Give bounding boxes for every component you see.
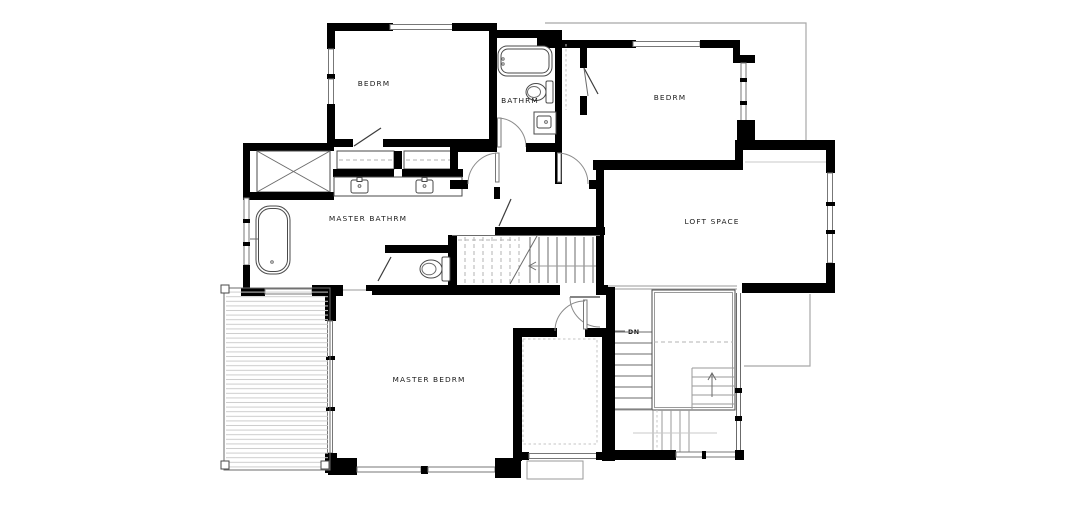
floor-plan-drawing: BEDRM [0, 0, 1072, 510]
loft-label: LOFT SPACE [684, 217, 739, 226]
bathroom-label: BATHRM [501, 96, 539, 105]
bathroom: BATHRM [458, 30, 562, 184]
bedroom-2-door-leaf [558, 153, 562, 182]
stair-treads-down [615, 332, 652, 409]
deck-post [221, 285, 229, 293]
deck-post [321, 461, 329, 469]
water-closet [378, 187, 511, 292]
floor-plan-canvas: BEDRM [0, 0, 1072, 510]
freestanding-tub-icon [250, 206, 290, 274]
bathroom-door-leaf [498, 118, 502, 147]
stair-void-open-below [652, 290, 735, 410]
wc-door-leaf-2 [499, 199, 511, 226]
bedroom-2-label: BEDRM [654, 93, 686, 102]
deck-post [221, 461, 229, 469]
closet-door-leaf [584, 300, 588, 329]
deck [221, 285, 330, 470]
hall-closet-door-leaf [496, 153, 500, 182]
deck-planks-icon [226, 290, 328, 468]
bedroom-1: BEDRM [327, 23, 497, 147]
sink-icon [416, 178, 433, 194]
master-bedroom: MASTER BEDRM [325, 290, 521, 478]
toilet-icon [420, 257, 450, 281]
bay-bump-out [527, 461, 583, 479]
stair-treads [530, 237, 593, 283]
wc-door-leaf [378, 257, 391, 281]
sink-icon [351, 178, 368, 194]
master-bedroom-label: MASTER BEDRM [393, 375, 466, 384]
stairwell: DN [606, 286, 744, 460]
closet-1 [337, 151, 394, 169]
bedroom-1-label: BEDRM [358, 79, 390, 88]
stair-treads-dashed [465, 237, 519, 283]
bedroom-1-door-leaf [354, 128, 381, 146]
sink-icon [534, 112, 556, 134]
closet-shelving-dashed [523, 339, 597, 444]
loft: LOFT SPACE [596, 140, 835, 293]
master-bathroom-label: MASTER BATHRM [329, 214, 407, 223]
stair-break-line [510, 236, 537, 284]
bathtub-icon [498, 46, 552, 76]
